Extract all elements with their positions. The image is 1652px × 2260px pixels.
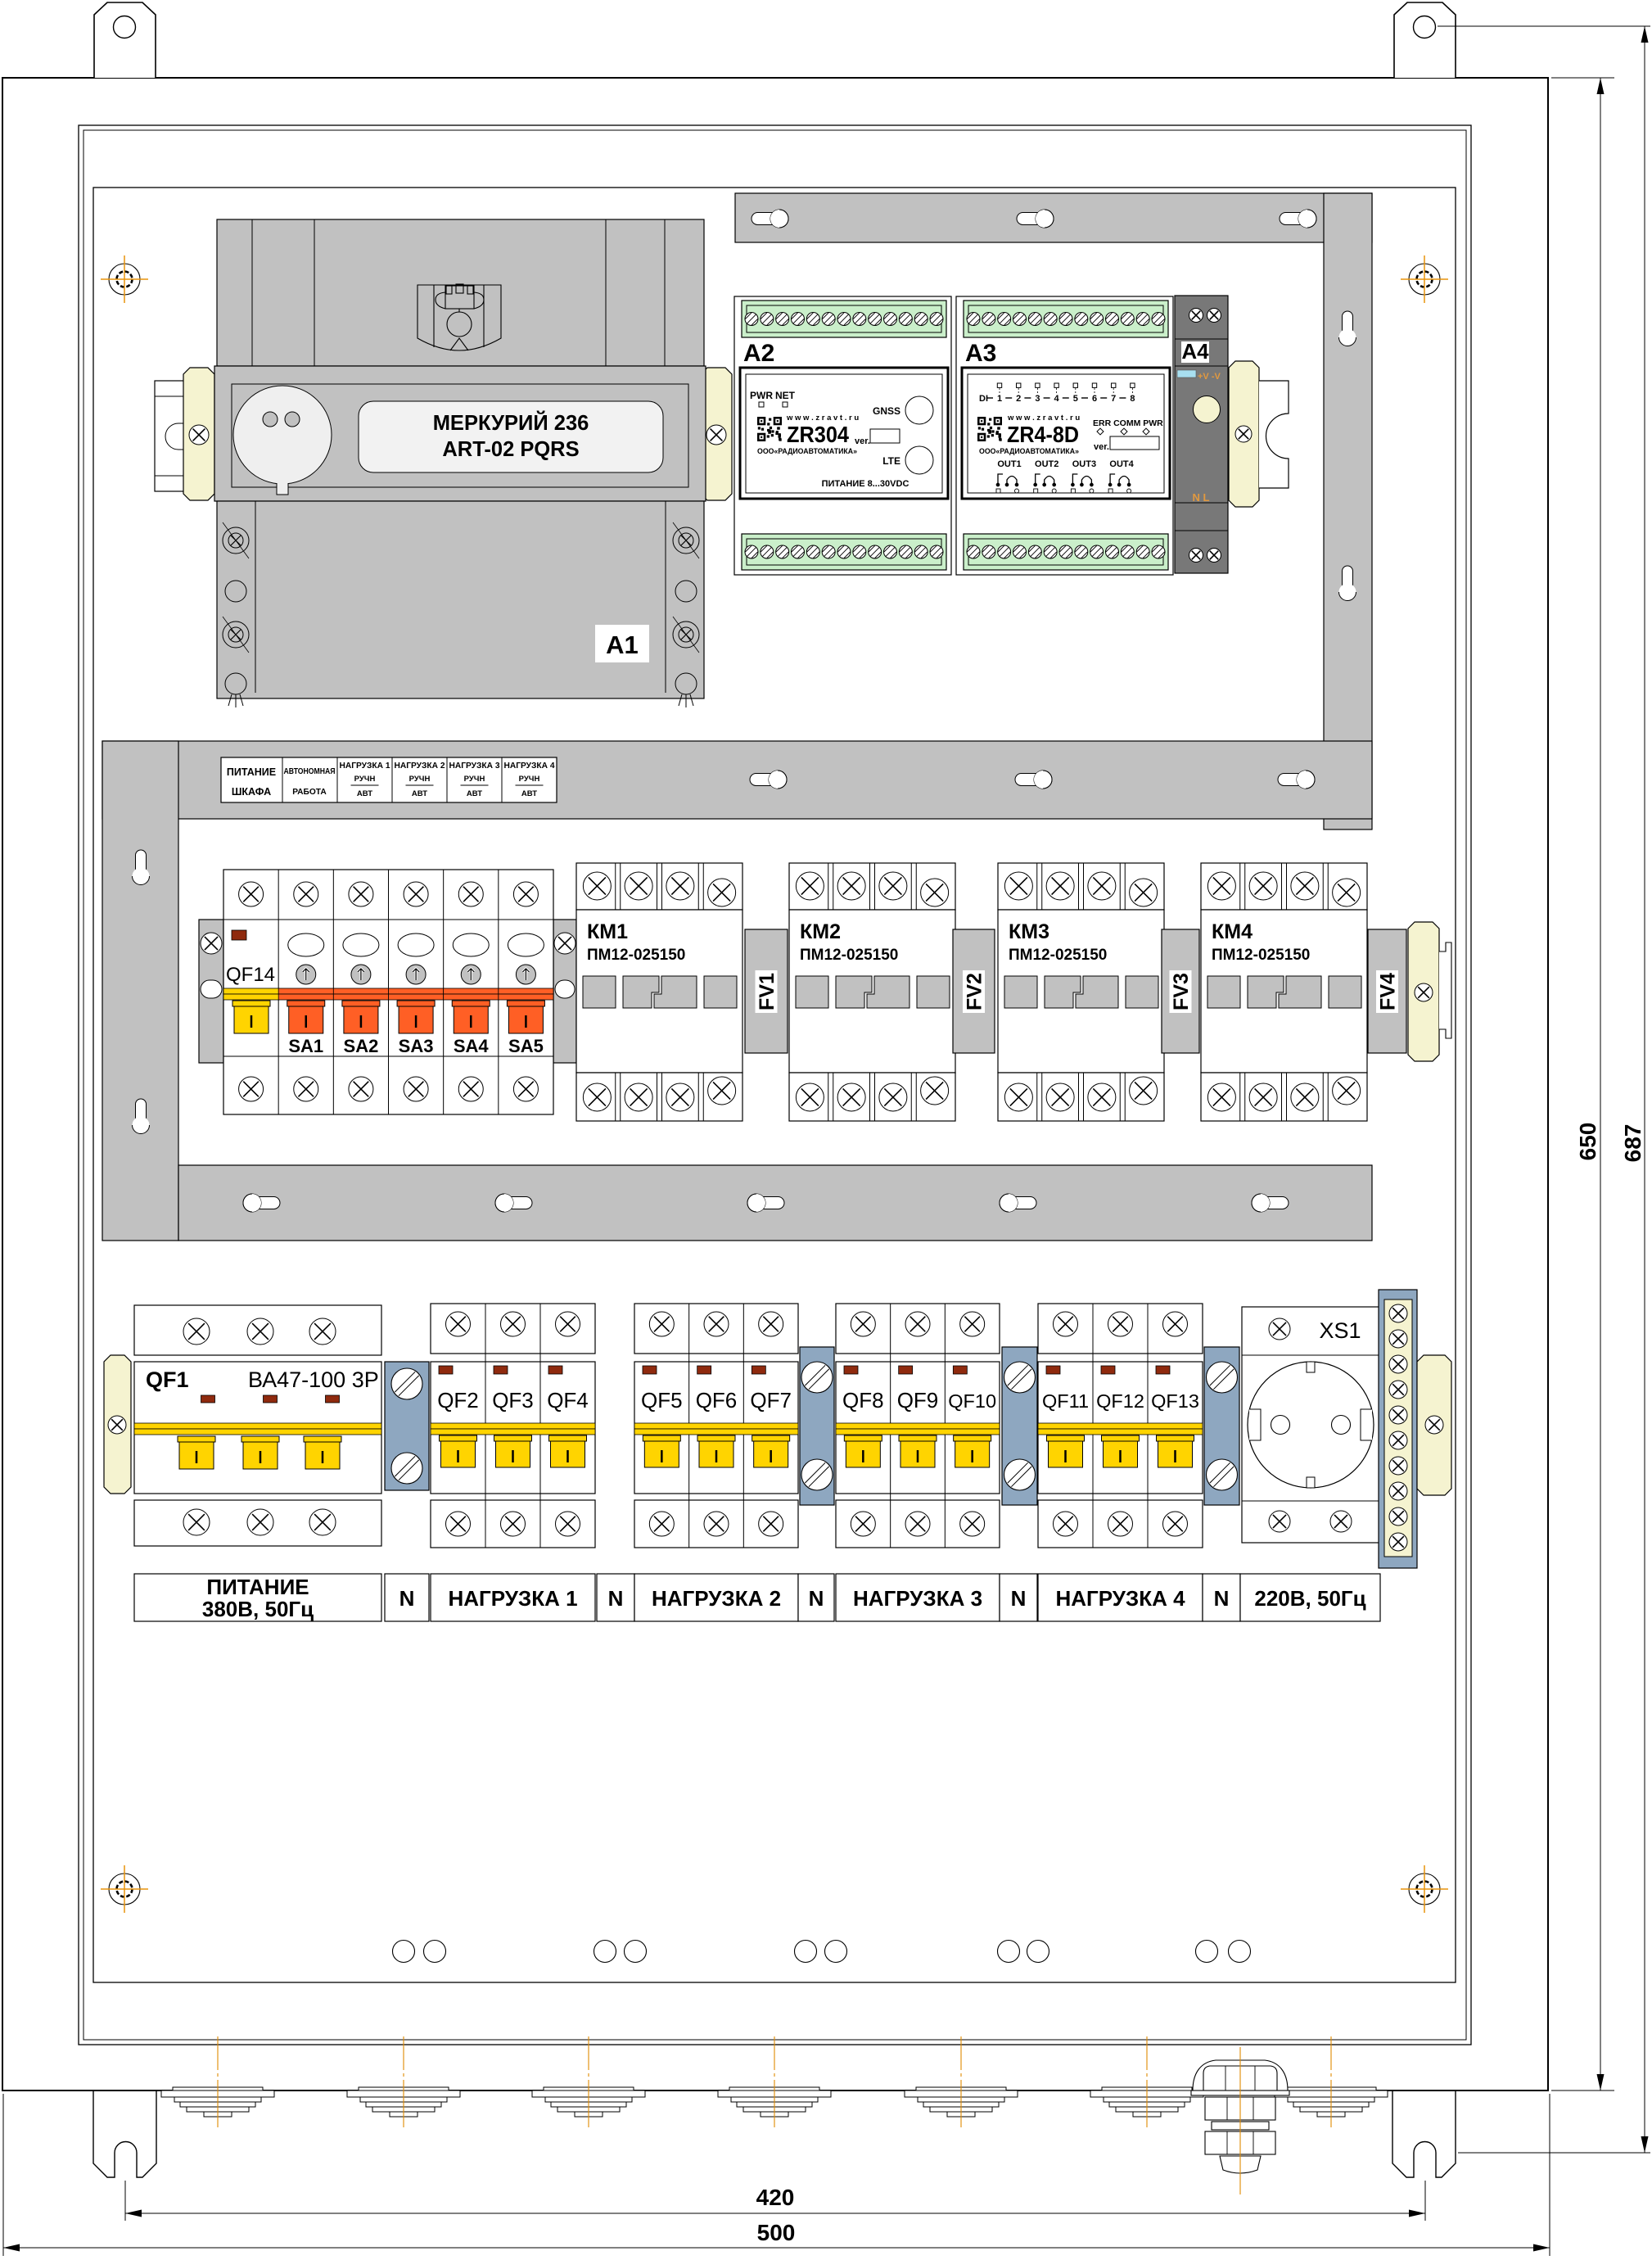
svg-text:A1: A1 — [606, 631, 639, 659]
svg-text:500: 500 — [757, 2220, 796, 2245]
svg-text:ООО«РАДИОАВТОМАТИКА»: ООО«РАДИОАВТОМАТИКА» — [979, 447, 1079, 456]
svg-text:ZR304: ZR304 — [787, 422, 849, 447]
svg-text:7: 7 — [1111, 394, 1116, 404]
svg-text:FV4: FV4 — [1377, 973, 1400, 1010]
svg-text:АВТ: АВТ — [412, 789, 427, 798]
svg-text:РУЧН: РУЧН — [464, 775, 485, 784]
svg-text:QF8: QF8 — [842, 1388, 884, 1412]
svg-text:OUT3: OUT3 — [1072, 459, 1096, 469]
svg-text:XS1: XS1 — [1319, 1318, 1361, 1343]
svg-text:ШКАФА: ШКАФА — [232, 786, 271, 798]
svg-text:N: N — [809, 1586, 824, 1611]
svg-text:НАГРУЗКА 3: НАГРУЗКА 3 — [853, 1586, 982, 1611]
svg-text:A3: A3 — [965, 340, 996, 367]
svg-text:QF14: QF14 — [226, 964, 275, 986]
svg-text:+V -V: +V -V — [1198, 372, 1221, 382]
svg-text:LTE: LTE — [882, 455, 900, 467]
svg-text:РАБОТА: РАБОТА — [292, 788, 327, 797]
svg-text:РУЧН: РУЧН — [409, 775, 431, 784]
svg-text:N: N — [608, 1586, 624, 1611]
svg-text:QF7: QF7 — [750, 1388, 792, 1412]
svg-text:ВА47-100 3Р: ВА47-100 3Р — [248, 1367, 379, 1392]
svg-text:ver.: ver. — [855, 436, 870, 446]
svg-text:PWR: PWR — [750, 390, 773, 401]
svg-text:GNSS: GNSS — [873, 405, 900, 417]
svg-text:ПМ12-025150: ПМ12-025150 — [1212, 947, 1310, 964]
svg-text:NET: NET — [775, 390, 796, 401]
svg-text:ПИТАНИЕ: ПИТАНИЕ — [227, 766, 276, 778]
svg-text:N: N — [1011, 1586, 1027, 1611]
svg-text:ПМ12-025150: ПМ12-025150 — [587, 947, 685, 964]
svg-text:420: 420 — [756, 2185, 795, 2210]
svg-text:НАГРУЗКА 4: НАГРУЗКА 4 — [1055, 1586, 1185, 1611]
svg-text:SA5: SA5 — [508, 1036, 544, 1056]
svg-text:OUT4: OUT4 — [1109, 459, 1134, 469]
svg-text:220В, 50Гц: 220В, 50Гц — [1254, 1586, 1365, 1611]
svg-text:QF3: QF3 — [492, 1388, 534, 1412]
svg-text:A2: A2 — [743, 340, 774, 367]
svg-text:SA2: SA2 — [344, 1036, 379, 1056]
svg-text:687: 687 — [1620, 1124, 1645, 1163]
svg-text:5: 5 — [1073, 394, 1078, 404]
svg-text:6: 6 — [1092, 394, 1097, 404]
svg-text:КМ1: КМ1 — [587, 920, 628, 943]
svg-text:НАГРУЗКА 2: НАГРУЗКА 2 — [395, 762, 445, 771]
svg-text:НАГРУЗКА 4: НАГРУЗКА 4 — [504, 762, 555, 771]
svg-text:QF2: QF2 — [437, 1388, 479, 1412]
svg-text:АВТ: АВТ — [521, 789, 537, 798]
svg-text:НАГРУЗКА 1: НАГРУЗКА 1 — [448, 1586, 577, 1611]
svg-text:FV3: FV3 — [1170, 973, 1193, 1010]
svg-text:1: 1 — [997, 394, 1002, 404]
svg-text:N: N — [1214, 1586, 1230, 1611]
svg-text:ERR COMM PWR: ERR COMM PWR — [1093, 418, 1163, 428]
svg-text:OUT2: OUT2 — [1035, 459, 1058, 469]
svg-text:КМ3: КМ3 — [1009, 920, 1049, 943]
svg-text:650: 650 — [1575, 1123, 1600, 1161]
svg-text:QF5: QF5 — [641, 1388, 683, 1412]
svg-text:N: N — [399, 1586, 415, 1611]
svg-text:ART-02 PQRS: ART-02 PQRS — [442, 438, 579, 461]
svg-text:НАГРУЗКА 1: НАГРУЗКА 1 — [340, 762, 390, 771]
svg-text:FV1: FV1 — [756, 973, 779, 1010]
svg-text:РУЧН: РУЧН — [354, 775, 376, 784]
svg-text:ПИТАНИЕ 8...30VDC: ПИТАНИЕ 8...30VDC — [822, 479, 910, 489]
svg-text:QF12: QF12 — [1096, 1390, 1144, 1412]
svg-text:4: 4 — [1054, 394, 1060, 404]
svg-text:НАГРУЗКА 3: НАГРУЗКА 3 — [449, 762, 500, 771]
svg-text:ООО«РАДИОАВТОМАТИКА»: ООО«РАДИОАВТОМАТИКА» — [757, 447, 857, 456]
svg-text:КМ2: КМ2 — [800, 920, 841, 943]
svg-text:ZR4-8D: ZR4-8D — [1007, 422, 1079, 447]
svg-text:КМ4: КМ4 — [1212, 920, 1253, 943]
svg-text:380В, 50Гц: 380В, 50Гц — [202, 1597, 314, 1621]
svg-text:АВТОНОМНАЯ: АВТОНОМНАЯ — [284, 767, 336, 776]
svg-text:QF9: QF9 — [897, 1388, 939, 1412]
svg-text:ver.: ver. — [1094, 442, 1109, 452]
svg-text:QF6: QF6 — [696, 1388, 738, 1412]
svg-text:QF10: QF10 — [948, 1390, 996, 1412]
svg-text:8: 8 — [1130, 394, 1135, 404]
svg-text:ПИТАНИЕ: ПИТАНИЕ — [206, 1575, 309, 1599]
svg-text:РУЧН: РУЧН — [519, 775, 540, 784]
svg-text:НАГРУЗКА 2: НАГРУЗКА 2 — [652, 1586, 781, 1611]
svg-text:QF4: QF4 — [547, 1388, 589, 1412]
svg-text:QF11: QF11 — [1042, 1390, 1089, 1412]
svg-text:SA3: SA3 — [399, 1036, 434, 1056]
svg-text:МЕРКУРИЙ 236: МЕРКУРИЙ 236 — [433, 410, 589, 435]
svg-text:SA1: SA1 — [288, 1036, 323, 1056]
svg-text:3: 3 — [1035, 394, 1040, 404]
svg-text:QF1: QF1 — [146, 1367, 189, 1392]
svg-text:QF13: QF13 — [1151, 1390, 1199, 1412]
svg-text:ПМ12-025150: ПМ12-025150 — [800, 947, 898, 964]
svg-text:A4: A4 — [1181, 339, 1209, 364]
svg-text:DI: DI — [979, 394, 988, 404]
svg-text:SA4: SA4 — [454, 1036, 490, 1056]
svg-text:АВТ: АВТ — [467, 789, 482, 798]
svg-text:АВТ: АВТ — [357, 789, 372, 798]
svg-text:2: 2 — [1016, 394, 1021, 404]
svg-text:FV2: FV2 — [964, 973, 986, 1010]
svg-text:N L: N L — [1193, 491, 1210, 504]
svg-text:ПМ12-025150: ПМ12-025150 — [1009, 947, 1107, 964]
svg-text:OUT1: OUT1 — [997, 459, 1021, 469]
